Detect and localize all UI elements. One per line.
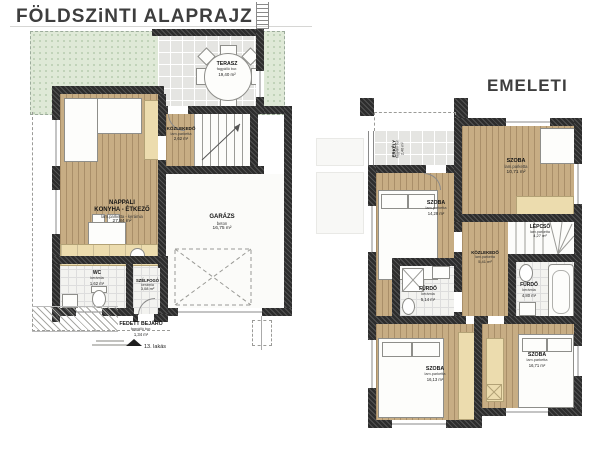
balcony-floor: [374, 131, 454, 167]
room-name: NAPPALI KONYHA - ÉTKEZŐ: [84, 200, 160, 214]
room-label-wc: WC kerámia 1,62 m²: [80, 270, 114, 286]
balcony-railing: [368, 131, 374, 167]
stairs-arrow: [194, 114, 250, 166]
fine-print-line: [92, 344, 128, 346]
room-area: 19,40 m²: [205, 72, 249, 77]
room-area: 27,84 m²: [84, 219, 160, 225]
sofa: [64, 98, 98, 162]
pillow: [382, 342, 412, 357]
room-area: 14,28 m²: [418, 211, 454, 216]
wall-segment: [158, 166, 264, 174]
wardrobe: [540, 128, 576, 164]
room-label-rotated: ERKÉLY fagyálló bur. 2,40 m²: [391, 140, 404, 158]
parking-space-marking: [174, 248, 252, 306]
room-area: 1,62 m²: [80, 281, 114, 286]
room-area: 2,62 m²: [162, 136, 200, 141]
pillow: [381, 194, 408, 209]
balcony-door-opening: [426, 165, 446, 173]
room-label-szoba3: SZOBA lam.parketta 16,13 m²: [414, 366, 456, 382]
room-name: GARÁZS: [198, 214, 246, 221]
wardrobe: [516, 196, 574, 216]
bathtub-inner: [552, 270, 570, 314]
room-label-kozlekedo: KÖZLEKEDŐ lam.parketta 2,62 m²: [162, 126, 200, 141]
wall-segment: [368, 165, 460, 173]
room-label-furdo2: FÜRDŐ kerámia 4,80 m²: [512, 282, 546, 298]
neighbour-ghost-block: [316, 138, 364, 166]
window: [52, 120, 60, 166]
pillow: [412, 342, 440, 357]
toilet-icon: [519, 264, 533, 282]
wall-segment: [250, 114, 258, 166]
utility-dashed-box: [252, 320, 272, 346]
room-label-nappali: NAPPALI KONYHA - ÉTKEZŐ lam.parketta - k…: [84, 200, 160, 225]
room-label-fedett-bejaro: FEDETT BEJÁRÓ fagyálló bur. 1,34 m²: [112, 321, 170, 337]
pillow: [522, 338, 547, 352]
room-label-szelfogo: SZÉLFOGÓ kerámia 3,08 m²: [131, 278, 164, 292]
wall-segment: [52, 86, 164, 94]
room-area: 5,14 m²: [406, 297, 450, 302]
room-label-terasz: TERASZ fagyálló bur. 19,40 m²: [205, 61, 249, 77]
window: [368, 206, 376, 252]
fence-hatch-strip: [256, 2, 269, 29]
room-area: 10,71 m²: [490, 170, 542, 176]
room-area: 5,41 m²: [462, 260, 508, 265]
washbasin: [519, 302, 536, 316]
room-area: 3,08 m²: [131, 287, 164, 292]
pillow: [547, 338, 572, 352]
room-label-garazs: GARÁZS beton 16,75 m²: [198, 214, 246, 232]
neighbour-ghost-block: [316, 172, 364, 234]
room-label-szoba2: SZOBA lam.parketta 14,28 m²: [418, 200, 454, 216]
north-triangle-icon: [126, 339, 142, 346]
wardrobe: [458, 332, 475, 420]
wall-segment: [360, 98, 374, 116]
walkway-hatch: [32, 306, 118, 332]
window: [506, 408, 548, 416]
upper-floor-title: EMELETI: [487, 76, 568, 96]
room-area: 16,71 m²: [514, 363, 560, 368]
door-opening: [454, 232, 462, 252]
boundary-line: [261, 316, 262, 350]
wall-segment: [152, 29, 264, 36]
room-label-lepcso: LÉPCSŐ lam.parketta 4,27 m²: [512, 224, 568, 239]
room-area: 1,34 m²: [112, 332, 170, 337]
door-opening: [488, 316, 504, 324]
wall-segment: [52, 256, 166, 264]
window: [392, 420, 446, 428]
upper-hallway-floor: [462, 222, 508, 316]
door-opening: [454, 292, 462, 312]
window: [52, 190, 60, 234]
wall-segment: [158, 94, 166, 268]
window: [574, 164, 582, 204]
room-label-szoba1: SZOBA lam.parketta 10,71 m²: [490, 158, 542, 175]
room-area: 16,75 m²: [198, 226, 246, 232]
room-area: 16,13 m²: [414, 377, 456, 382]
room-label-szoba4: SZOBA lam.parketta 16,71 m²: [514, 352, 560, 368]
wall-segment: [454, 214, 582, 222]
window: [574, 346, 582, 376]
wall-segment: [284, 106, 292, 316]
garage-door: [178, 308, 262, 316]
wall-segment: [368, 165, 376, 428]
furniture-x-marking: [486, 384, 502, 400]
room-label-furdo1: FÜRDŐ kerámia 5,14 m²: [406, 286, 450, 302]
window: [368, 340, 376, 388]
window: [256, 71, 264, 97]
roof-overhang-dashed: [374, 112, 456, 131]
ground-floor-title: FÖLDSZiNTI ALAPRAJZ: [16, 6, 253, 28]
room-area: 2,40 m²: [400, 140, 404, 158]
door-opening: [168, 106, 188, 114]
washbasin: [432, 266, 450, 279]
unit-caption: 13. lakás: [144, 344, 180, 350]
window: [506, 118, 550, 126]
room-area: 4,80 m²: [512, 293, 546, 298]
wall-segment: [392, 258, 462, 266]
wall-segment: [454, 98, 468, 118]
fine-print-line: [96, 340, 124, 342]
property-line-left: [32, 112, 34, 332]
room-area: 4,27 m²: [512, 234, 568, 239]
floorplan-canvas: FÖLDSZiNTI ALAPRAJZ TERASZ fagyálló bur.…: [0, 0, 600, 456]
room-label-erkely: ERKÉLY fagyálló bur. 2,40 m²: [388, 131, 408, 167]
wall-segment: [392, 258, 400, 318]
room-label-kozlekedo-upper: KÖZLEKEDŐ lam.parketta 5,41 m²: [462, 250, 508, 264]
wall-segment: [508, 254, 582, 262]
room-name: KÖZLEKEDŐ: [162, 126, 200, 132]
